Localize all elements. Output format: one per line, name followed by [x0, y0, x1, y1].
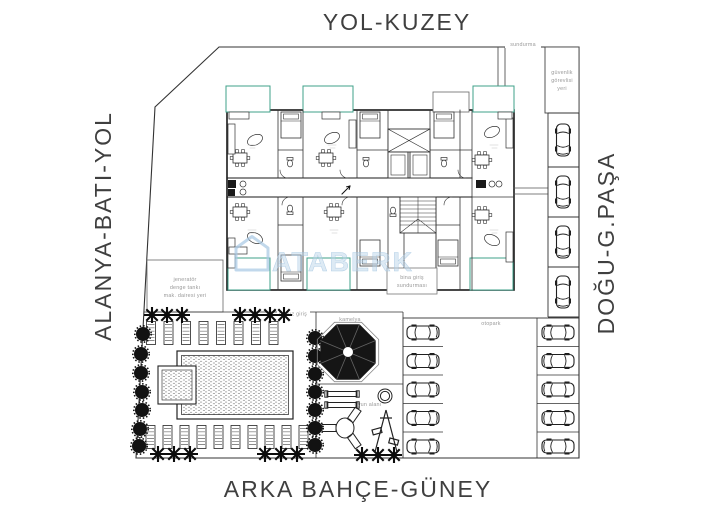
site-plan-page: YOL-KUZEY ALANYA-BATI-YOL DOĞU-G.PAŞA AR… [0, 0, 708, 512]
tree-icon [307, 437, 323, 453]
palm-tree-icon [273, 446, 289, 462]
security-label-line2: görevlisi [551, 78, 573, 84]
generator-label-line2: denge tankı [170, 285, 200, 291]
palm-tree-icon [262, 307, 278, 323]
palm-tree-icon [232, 307, 248, 323]
palm-tree-icon [159, 307, 175, 323]
car-icon [407, 439, 439, 455]
tree-icon [134, 384, 150, 400]
car-icon [542, 439, 574, 455]
tree-icon [307, 384, 323, 400]
street-label-north: YOL-KUZEY [323, 9, 471, 35]
staircase [400, 197, 436, 233]
generator-room: jeneratör denge tankı mak. dairesi yeri [147, 260, 223, 312]
balcony-bottom-3 [470, 258, 513, 290]
car-icon [542, 410, 574, 426]
swing-icon [372, 410, 399, 452]
gazebo: kamelya [317, 317, 378, 382]
entrance-label-line2: sundurması [397, 283, 427, 289]
tree-icon [131, 438, 147, 454]
car-icon [542, 325, 574, 341]
car-icon [407, 353, 439, 369]
watermark-text: ATABERK [272, 247, 414, 277]
car-icon [542, 382, 574, 398]
palm-tree-icon [370, 447, 386, 463]
generator-label-line1: jeneratör [172, 277, 196, 283]
parking-label: otopark [481, 321, 500, 327]
parking-lot: otopark [403, 318, 579, 458]
tree-icon [133, 365, 149, 381]
palm-tree-icon [289, 446, 305, 462]
car-icon [555, 124, 571, 156]
car-icon [555, 176, 571, 208]
tree-icon [133, 346, 149, 362]
palm-tree-icon [174, 307, 190, 323]
car-icon [555, 226, 571, 258]
sunbeds-top [147, 322, 279, 345]
tree-icon [307, 402, 323, 418]
balcony-top-1 [226, 86, 270, 112]
security-hut: güvenlik görevlisi yeri [545, 47, 579, 113]
sunbeds-bottom [146, 426, 308, 449]
palm-tree-icon [247, 307, 263, 323]
palm-tree-icon [150, 446, 166, 462]
street-label-east: DOĞU-G.PAŞA [593, 152, 619, 335]
street-label-south: ARKA BAHÇE-GÜNEY [224, 476, 492, 502]
ring-icon [378, 389, 392, 403]
balcony-top-2 [303, 86, 353, 112]
palm-tree-icon [354, 447, 370, 463]
driveway-connector [514, 188, 548, 194]
security-label-line3: yeri [557, 86, 567, 92]
playground: oyun alanı [316, 384, 403, 452]
balcony-top-4 [473, 86, 514, 112]
palm-tree-icon [257, 446, 273, 462]
playground-label: oyun alanı [355, 402, 382, 408]
palm-tree-icon [276, 307, 292, 323]
tree-icon [307, 420, 323, 436]
canopy-label: sundurma [510, 42, 536, 48]
car-icon [555, 276, 571, 308]
car-icon [407, 382, 439, 398]
palm-tree-icon [182, 446, 198, 462]
security-label-line1: güvenlik [551, 70, 572, 76]
kids-pool [158, 366, 196, 404]
site-plan-drawing: YOL-KUZEY ALANYA-BATI-YOL DOĞU-G.PAŞA AR… [0, 0, 708, 512]
balcony-top-3 [433, 92, 469, 112]
parking-strip-east [548, 113, 579, 317]
palm-tree-icon [166, 446, 182, 462]
generator-label-line3: mak. dairesi yeri [164, 293, 207, 299]
merry-go-round-icon [322, 407, 361, 449]
car-icon [407, 410, 439, 426]
palm-tree-icon [386, 447, 402, 463]
car-icon [407, 325, 439, 341]
palm-tree-icon [144, 307, 160, 323]
car-icon [542, 353, 574, 369]
street-label-west: ALANYA-BATI-YOL [90, 111, 116, 341]
tree-icon [134, 402, 150, 418]
